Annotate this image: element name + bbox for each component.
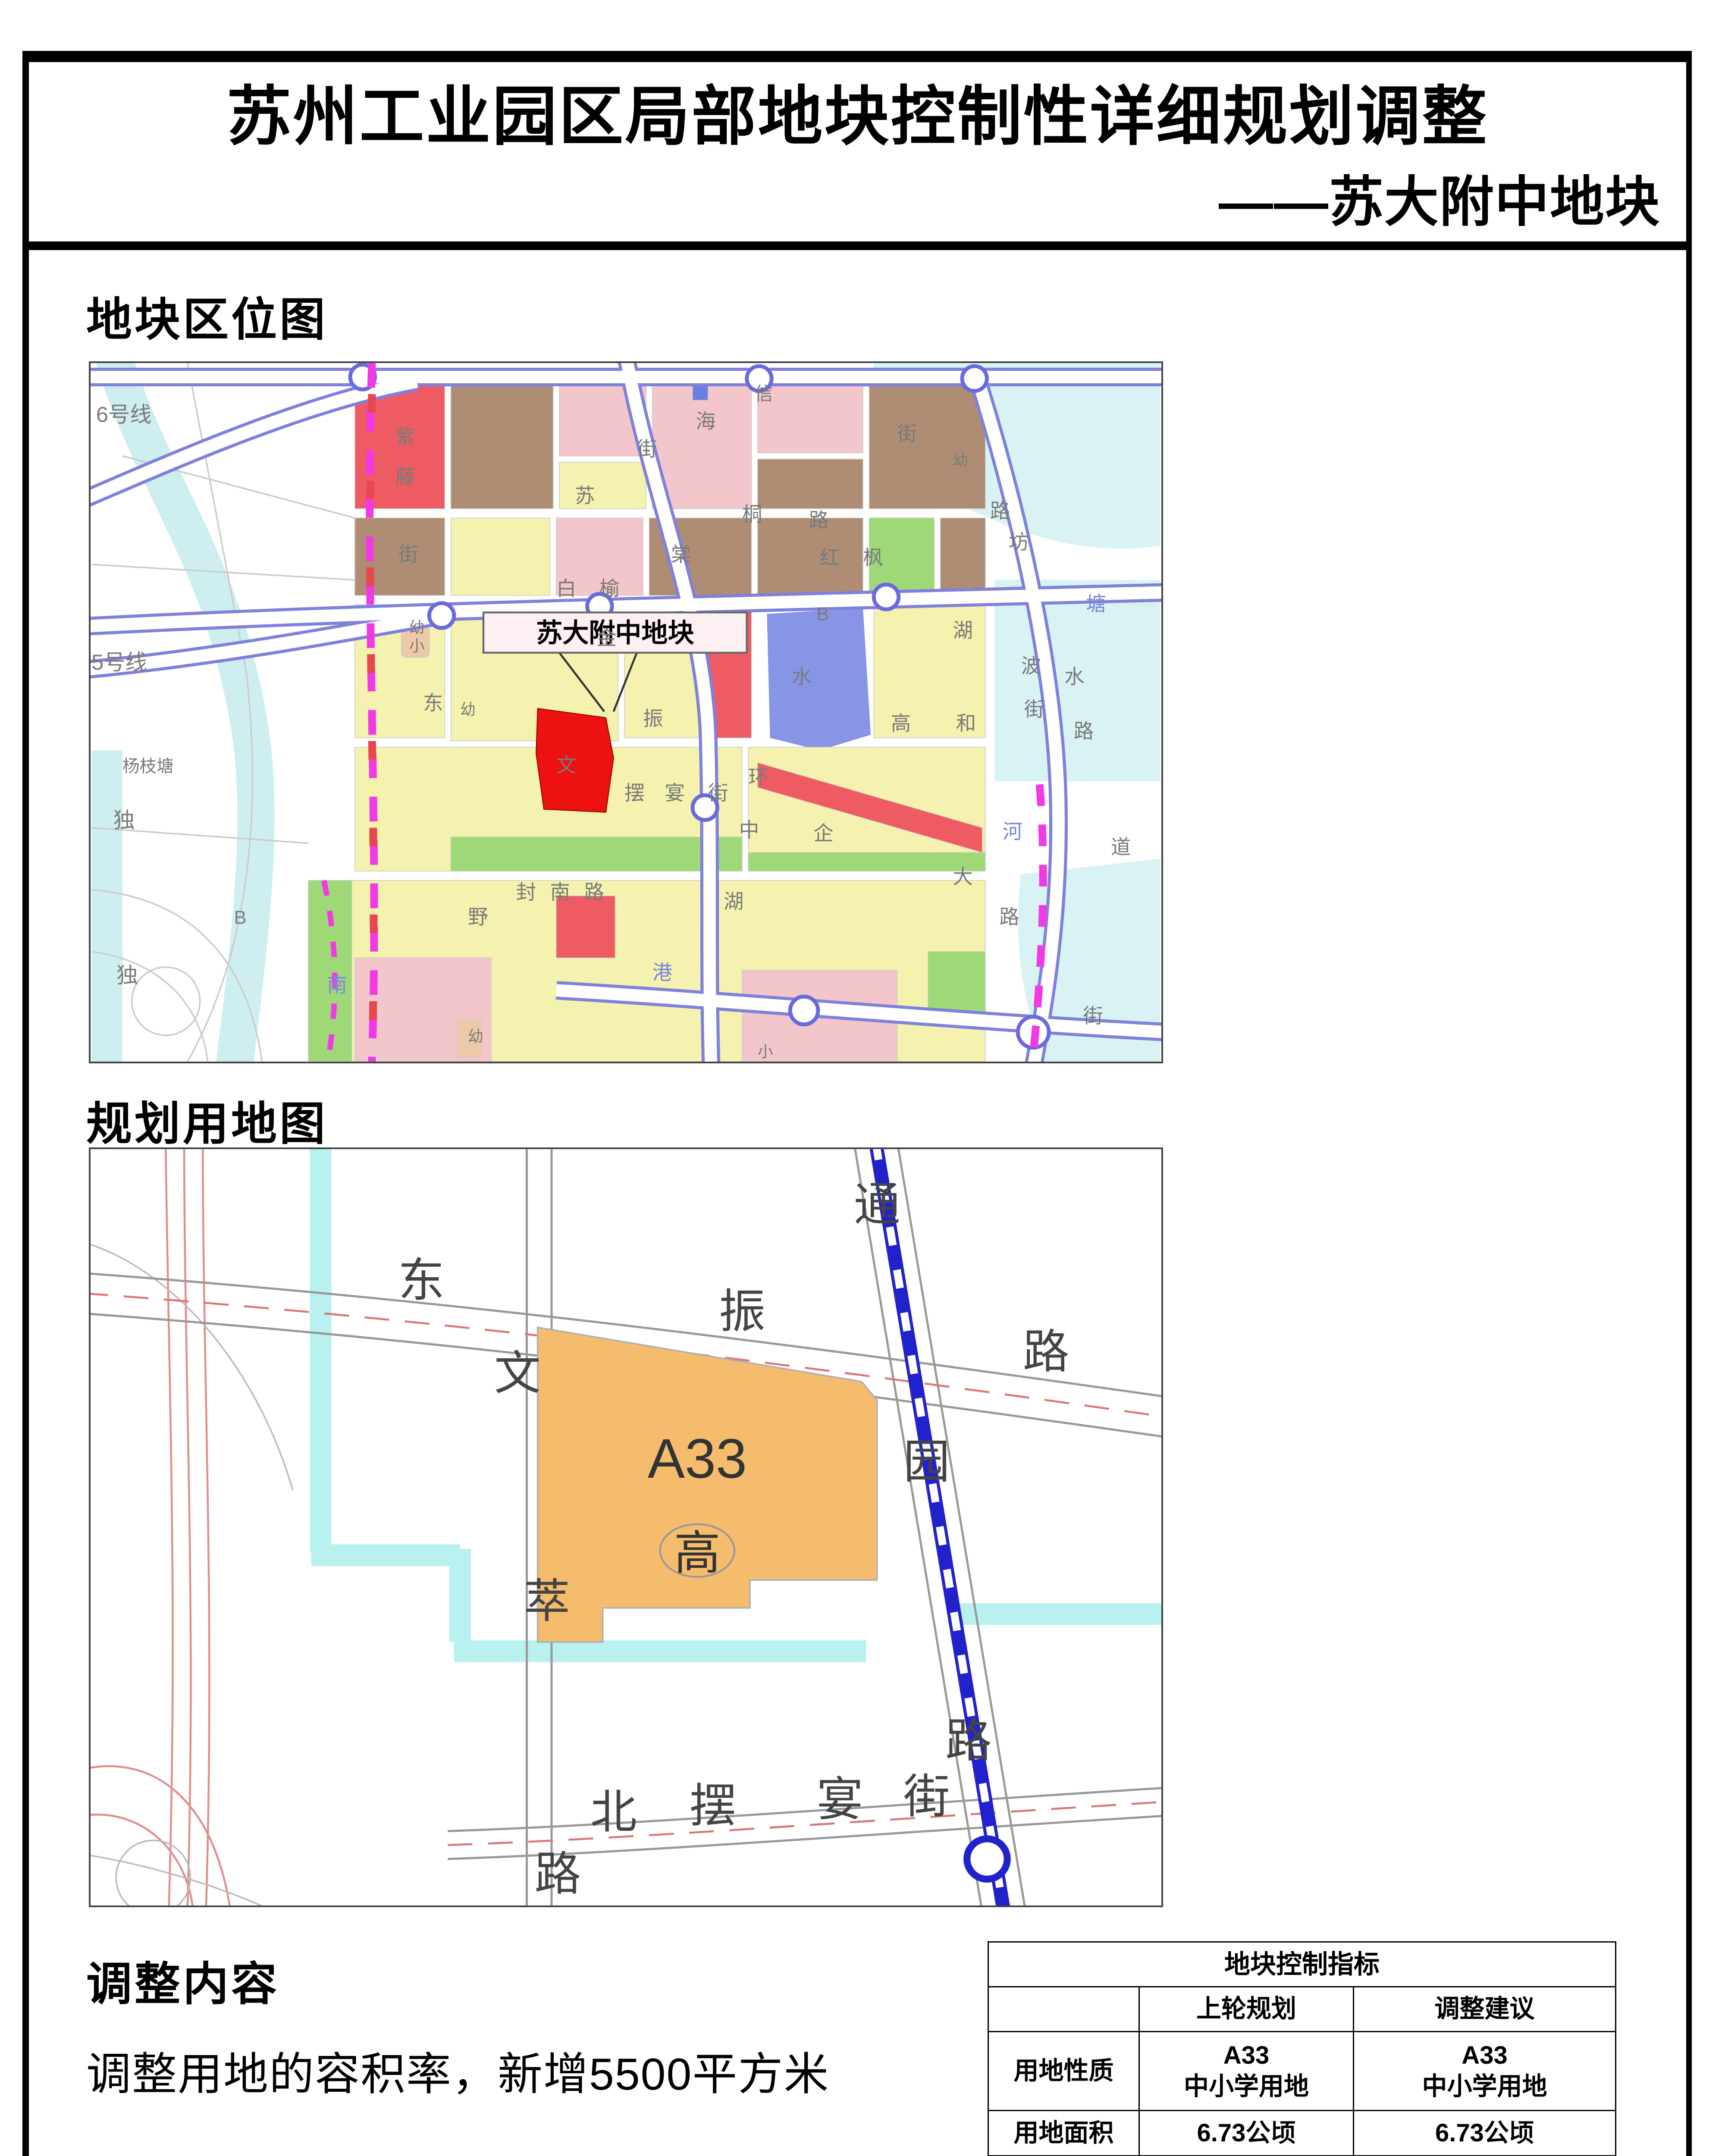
map-road-label: 幼 <box>468 1027 483 1045</box>
map-road-label: 路 <box>990 500 1010 522</box>
map-road-label: 路 <box>809 509 829 532</box>
map-road-label: 路 <box>1074 720 1094 742</box>
map-road-label: 园 <box>903 1435 950 1488</box>
table-title-row: 地块控制指标 <box>988 1942 1616 1987</box>
map-road-label: 桐 <box>742 503 762 525</box>
map-road-label: 道 <box>1111 836 1131 859</box>
next-value: A33中小学用地 <box>1354 2032 1616 2111</box>
map-road-label: 榆 <box>599 577 620 600</box>
map-road-label: 街 <box>398 543 418 566</box>
map-road-label: 独 <box>116 963 138 987</box>
map-road-label: 中 <box>739 819 759 841</box>
map-road-label: 大 <box>953 865 973 888</box>
map-road-label: 塘 <box>1086 593 1106 615</box>
map-road-label: 信 <box>755 384 773 404</box>
adjustment-text-line2: 建筑面积。 <box>86 2142 315 2156</box>
metro-station-icon <box>967 1839 1007 1879</box>
map-road-label: 振 <box>719 1285 765 1337</box>
map-road-label: 幼 <box>460 700 476 718</box>
map-road-label: 路 <box>584 881 605 903</box>
header-box: 苏州工业园区局部地块控制性详细规划调整 ——苏大附中地块 <box>22 51 1692 250</box>
map-road-label: 萃 <box>524 1575 570 1627</box>
map-road-label: 振 <box>643 708 663 730</box>
prev-value: A33中小学用地 <box>1139 2032 1354 2111</box>
map-road-label: 波 <box>1021 655 1041 677</box>
map-road-label: 南 <box>327 974 347 996</box>
page-title: 苏州工业园区局部地块控制性详细规划调整 <box>29 81 1686 152</box>
map-road-label: 6号线 <box>96 402 152 426</box>
table-header-row: 上轮规划 调整建议 <box>988 1987 1616 2032</box>
map-road-label: 文 <box>494 1347 541 1399</box>
map-road-label: B <box>816 604 829 624</box>
a33-parcel-code: A33 <box>648 1428 747 1490</box>
table-title: 地块控制指标 <box>988 1942 1616 1987</box>
map-road-label: 杨枝塘 <box>122 757 174 776</box>
map-road-label: 封 <box>516 881 536 903</box>
map-road-label: 河 <box>1002 821 1022 843</box>
landuse-map-canvas: A33 高 东振路文萃路通园路北摆宴街 <box>91 1149 1161 1905</box>
map-road-label: 南 <box>550 881 570 903</box>
map-road-label: 宴 <box>817 1774 863 1826</box>
map-road-label: 宴 <box>665 782 685 804</box>
map-road-label: 坊 <box>1009 531 1029 553</box>
map-road-label: 摆 <box>690 1780 736 1832</box>
map-road-label: 企 <box>813 822 834 844</box>
map-road-label: 紫 <box>395 426 415 448</box>
map-road-label: 藤 <box>395 466 415 488</box>
map-road-label: 街 <box>903 1770 950 1822</box>
map-road-label: 路 <box>945 1714 992 1767</box>
map-road-label: 红 <box>820 546 840 569</box>
adjustment-heading: 调整内容 <box>86 1947 279 2013</box>
indicator-table: 地块控制指标 上轮规划 调整建议 用地性质 A33中小学用地 A33中小学用地 … <box>988 1941 1616 2156</box>
map-road-label: 独 <box>113 808 135 833</box>
map-road-label: 小 <box>409 637 425 655</box>
map-road-label: 通 <box>854 1178 900 1230</box>
adjustment-text-line1: 调整用地的容积率，新增5500平方米 <box>86 2037 829 2103</box>
map-road-label: 湖 <box>724 890 744 912</box>
landuse-map: A33 高 东振路文萃路通园路北摆宴街 <box>89 1147 1163 1907</box>
col-adjust-proposal: 调整建议 <box>1354 1987 1616 2032</box>
map-road-label: 5号线 <box>91 650 147 674</box>
table-row: 用地性质 A33中小学用地 A33中小学用地 <box>988 2032 1616 2111</box>
map-road-label: 路 <box>534 1848 581 1900</box>
next-value: 6.73公顷 <box>1354 2111 1616 2156</box>
map-road-label: 东 <box>423 692 443 714</box>
map-road-label: 幼 <box>953 451 968 469</box>
map-road-label: 水 <box>1064 666 1085 688</box>
map-road-label: 摆 <box>624 782 645 804</box>
map-road-label: 街 <box>1024 698 1044 721</box>
col-previous-plan: 上轮规划 <box>1139 1987 1354 2032</box>
map-road-label: 和 <box>956 712 976 734</box>
map-road-label: 水 <box>792 666 812 688</box>
location-map-heading: 地块区位图 <box>86 282 328 349</box>
map-road-label: B <box>234 907 247 928</box>
map-road-label: 枫 <box>863 546 883 569</box>
row-label: 用地性质 <box>988 2032 1139 2111</box>
map-road-label: 北 <box>590 1786 637 1838</box>
map-road-label: 东 <box>398 1254 445 1306</box>
map-road-label: 棠 <box>671 543 691 566</box>
map-road-label: 环 <box>748 766 768 789</box>
landuse-map-heading: 规划用地图 <box>86 1087 328 1153</box>
map-road-label: 小 <box>758 1043 773 1060</box>
map-road-label: 港 <box>652 962 673 984</box>
map-road-label: 街 <box>1083 1005 1103 1027</box>
plan-document-page: 苏州工业园区局部地块控制性详细规划调整 ——苏大附中地块 地块区位图 <box>0 0 1725 2156</box>
table-row: 用地面积 6.73公顷 6.73公顷 <box>988 2111 1616 2156</box>
map-road-label: 金 <box>596 627 617 649</box>
location-map: 苏大附中地块 6号线5号线杨枝塘独独紫藤街东苏海信街棠桐路白榆金红枫街路坊水水湖… <box>89 361 1163 1063</box>
a33-parcel-symbol: 高 <box>674 1527 721 1579</box>
map-road-label: 街 <box>708 782 728 804</box>
location-map-canvas: 苏大附中地块 6号线5号线杨枝塘独独紫藤街东苏海信街棠桐路白榆金红枫街路坊水水湖… <box>91 363 1161 1062</box>
page-subtitle: ——苏大附中地块 <box>29 158 1686 237</box>
map-road-label: 野 <box>468 906 488 928</box>
row-label: 用地面积 <box>988 2111 1139 2156</box>
map-road-label: 海 <box>696 410 716 432</box>
map-road-label: 湖 <box>953 619 973 642</box>
map-road-label: 路 <box>999 906 1019 928</box>
map-road-label: 苏 <box>575 484 595 507</box>
map-road-label: 高 <box>891 712 911 734</box>
prev-value: 6.73公顷 <box>1139 2111 1354 2156</box>
map-road-label: 幼 <box>409 618 425 636</box>
map-road-label: 文 <box>556 754 577 776</box>
map-road-label: 街 <box>897 423 917 445</box>
map-road-label: 路 <box>1023 1326 1069 1378</box>
map-road-label: 街 <box>637 438 657 461</box>
map-road-label: 白 <box>556 577 577 600</box>
